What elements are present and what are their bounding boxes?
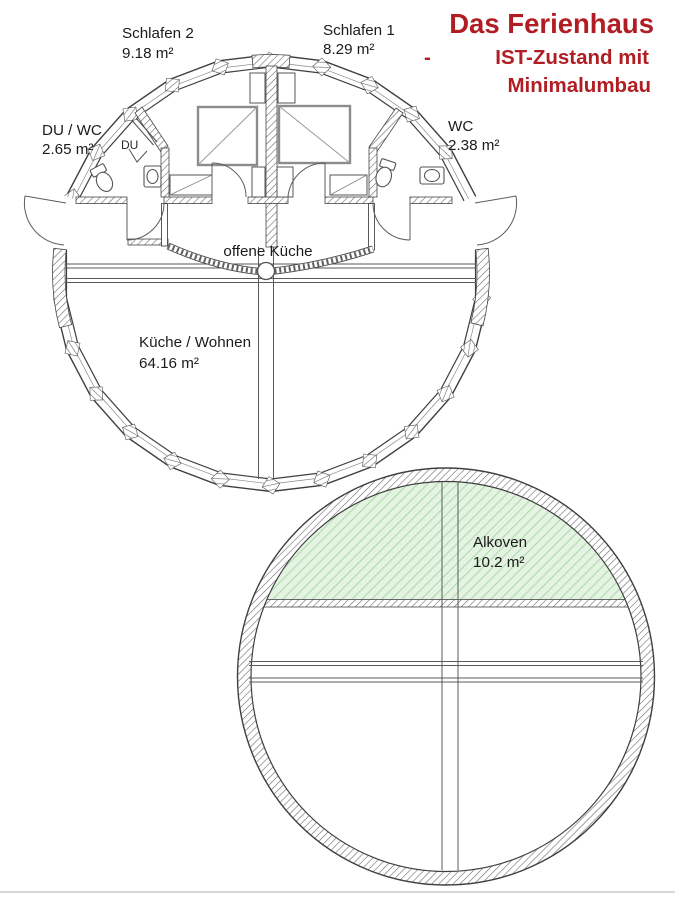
beam-lines-upper <box>65 247 476 479</box>
room-area-duwc: 2.65 m² <box>42 141 94 158</box>
slide-canvas: Schlafen 2 9.18 m² Schlafen 1 8.29 m² DU… <box>0 0 675 900</box>
hall-wall-segment <box>410 197 452 204</box>
room-area-kueche-wohnen: 64.16 m² <box>139 355 199 372</box>
alkoven-chord-wall <box>264 600 628 608</box>
wc-diagonal-wall <box>369 108 403 153</box>
floor-plan-drawing: Schlafen 2 9.18 m² Schlafen 1 8.29 m² DU… <box>0 0 675 900</box>
room-label-wc: WC <box>448 118 473 135</box>
nightstand <box>278 73 295 103</box>
hall-wall-segment <box>164 197 212 204</box>
room-label-alkoven: Alkoven <box>473 534 527 551</box>
cabinet <box>277 167 293 197</box>
hall-wall-segment <box>76 197 127 204</box>
center-column <box>258 263 275 280</box>
hall-wall-segment <box>248 197 288 204</box>
title-dash: - <box>424 46 431 69</box>
duwc-side-wall <box>161 148 169 197</box>
alkoven-area <box>266 482 626 602</box>
annotation-offene-kueche: offene Küche <box>223 243 312 260</box>
central-wall <box>266 66 277 247</box>
room-label-duwc: DU / WC <box>42 122 102 139</box>
room-label-schlafen1: Schlafen 1 <box>323 22 395 39</box>
wc-side-wall <box>369 148 377 197</box>
subtitle-line1: IST-Zustand mit <box>495 46 649 69</box>
room-area-schlafen2: 9.18 m² <box>122 45 174 62</box>
cabinet <box>252 167 265 197</box>
annotation-du: DU <box>121 138 138 152</box>
room-label-kueche-wohnen: Küche / Wohnen <box>139 334 251 351</box>
subtitle-line2: Minimalumbau <box>507 74 651 97</box>
room-area-alkoven: 10.2 m² <box>473 554 525 571</box>
nightstand <box>250 73 265 103</box>
toilet-icon <box>90 163 116 194</box>
upper-floor-plan: Schlafen 2 9.18 m² Schlafen 1 8.29 m² DU… <box>24 22 516 494</box>
room-area-schlafen1: 8.29 m² <box>323 41 375 58</box>
lower-floor-plan: Alkoven 10.2 m² <box>238 468 655 885</box>
title-block: Das Ferienhaus - IST-Zustand mit Minimal… <box>424 8 654 97</box>
room-label-schlafen2: Schlafen 2 <box>122 25 194 42</box>
room-area-wc: 2.38 m² <box>448 137 500 154</box>
page-title: Das Ferienhaus <box>449 8 654 39</box>
hall-wall-segment <box>325 197 373 204</box>
